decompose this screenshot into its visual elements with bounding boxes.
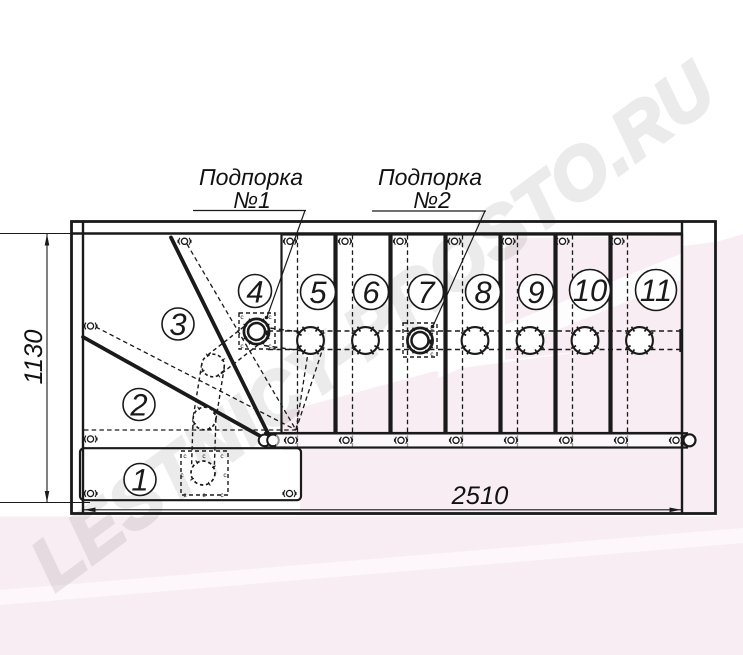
svg-text:№1: №1 <box>233 187 271 213</box>
svg-text:2: 2 <box>129 388 147 423</box>
svg-text:3: 3 <box>169 307 186 342</box>
svg-text:6: 6 <box>362 275 380 310</box>
svg-text:4: 4 <box>246 275 263 310</box>
svg-text:№2: №2 <box>413 187 451 213</box>
svg-text:2510: 2510 <box>451 482 509 510</box>
svg-text:10: 10 <box>573 273 607 308</box>
svg-text:1: 1 <box>131 463 148 498</box>
svg-text:11: 11 <box>640 273 672 308</box>
svg-text:8: 8 <box>474 275 492 310</box>
svg-text:7: 7 <box>417 275 436 310</box>
svg-text:5: 5 <box>309 275 327 310</box>
svg-text:9: 9 <box>527 275 544 310</box>
svg-text:1130: 1130 <box>20 330 48 385</box>
